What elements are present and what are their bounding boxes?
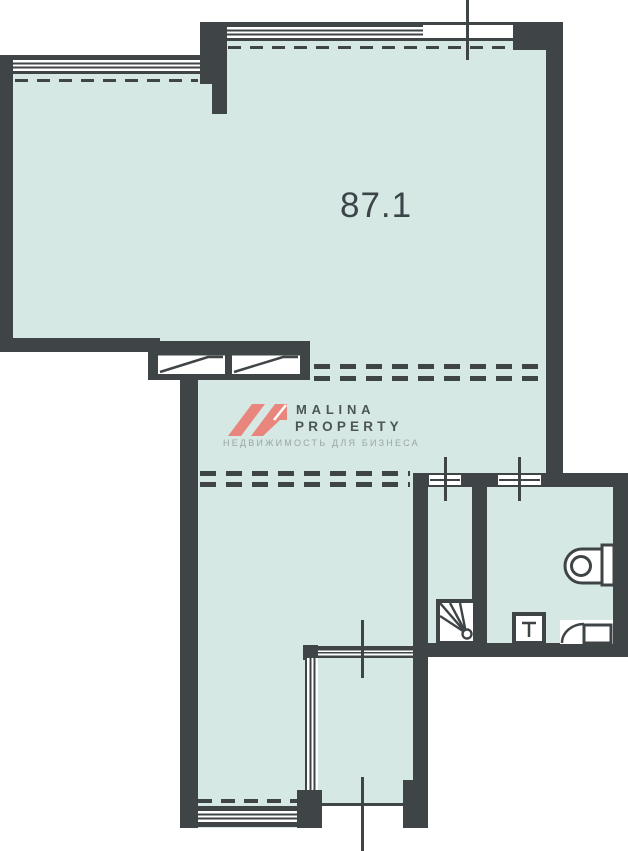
zone-boundary-dash-mid-b: [200, 482, 410, 487]
wall-step-upper: [200, 22, 227, 84]
wall-bottom-window-inner-line: [198, 824, 297, 827]
wall-bottom-of-top-left-room: [0, 338, 160, 352]
zone-boundary-dash-mid-a: [200, 471, 410, 476]
window-band-top-right: [227, 25, 423, 38]
wall-bay-bottom-right: [403, 780, 428, 828]
door-leaf-icon: [232, 352, 300, 374]
zone-boundary-dash-upper-b: [314, 376, 546, 381]
malina-logo-mark-icon: [224, 399, 294, 441]
wall-corridor-left: [180, 378, 198, 828]
watermark-brand-line2: PROPERTY: [295, 419, 403, 434]
floor-plan: MALINA PROPERTY НЕДВИЖИМОСТЬ ДЛЯ БИЗНЕСА…: [0, 0, 628, 851]
riser-cross-bar-shower-room: [430, 479, 460, 481]
bay-glazing-bottom-line: [318, 656, 413, 659]
entrance-door-leaf-left: [158, 352, 225, 374]
riser-axis-mark-bay-bottom: [361, 777, 364, 851]
riser-axis-mark-top: [466, 0, 469, 60]
wall-step-lower: [212, 84, 227, 114]
shower-icon: [436, 599, 477, 645]
glazing-band-bay-top: [318, 649, 413, 656]
glazing-band-bay-left: [305, 658, 318, 790]
lintel-dashed-line-top-right: [228, 46, 513, 49]
washbasin-icon: [512, 612, 546, 645]
riser-axis-mark-bay-top: [361, 620, 364, 678]
toilet-icon: [558, 542, 616, 588]
floor-area-top-left-room: [13, 58, 227, 352]
window-band-top-left: [13, 58, 200, 71]
wall-right-exterior: [546, 40, 563, 477]
lintel-dashed-line-top-left: [15, 79, 198, 82]
window-band-bottom-left: [198, 809, 297, 824]
wall-top-left-inner-line: [13, 71, 200, 74]
door-swing-icon: [558, 616, 616, 646]
watermark-brand-line1: MALINA: [296, 402, 375, 417]
area-label: 87.1: [340, 186, 412, 226]
zone-boundary-dash-upper-a: [314, 364, 546, 369]
wall-left-exterior: [0, 55, 13, 352]
lintel-dashed-line-bottom: [198, 799, 297, 803]
watermark-tagline: НЕДВИЖИМОСТЬ ДЛЯ БИЗНЕСА: [223, 438, 420, 448]
entrance-door-leaf-right: [232, 352, 300, 374]
wall-bay-bottom-left: [297, 790, 322, 828]
door-leaf-icon: [158, 352, 225, 374]
riser-cross-bar-wc: [499, 479, 540, 481]
wall-top-right-inner-line: [227, 38, 513, 41]
